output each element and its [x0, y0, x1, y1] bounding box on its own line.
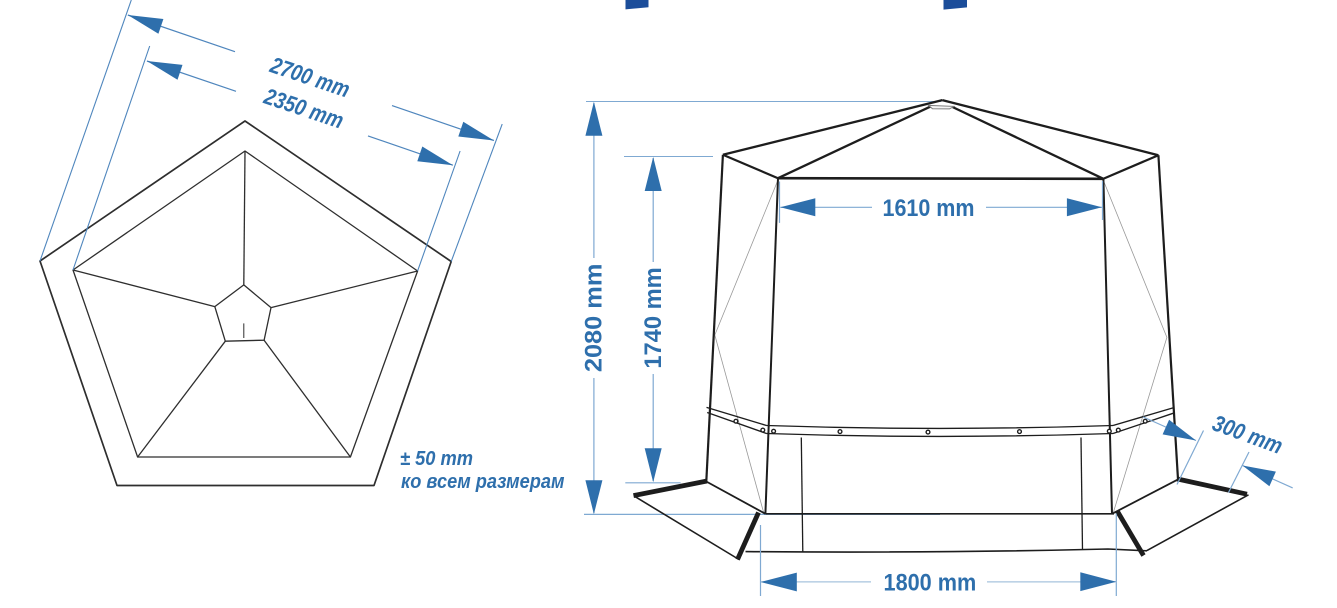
svg-text:1740 mm: 1740 mm: [640, 267, 667, 368]
svg-text:1610 mm: 1610 mm: [883, 195, 975, 222]
svg-text:ко всем размерам: ко всем размерам: [401, 471, 565, 493]
svg-text:2080 mm: 2080 mm: [581, 264, 608, 373]
svg-text:1800 mm: 1800 mm: [884, 570, 977, 597]
svg-text:300 mm: 300 mm: [1209, 410, 1286, 459]
svg-text:± 50 mm: ± 50 mm: [400, 448, 473, 470]
